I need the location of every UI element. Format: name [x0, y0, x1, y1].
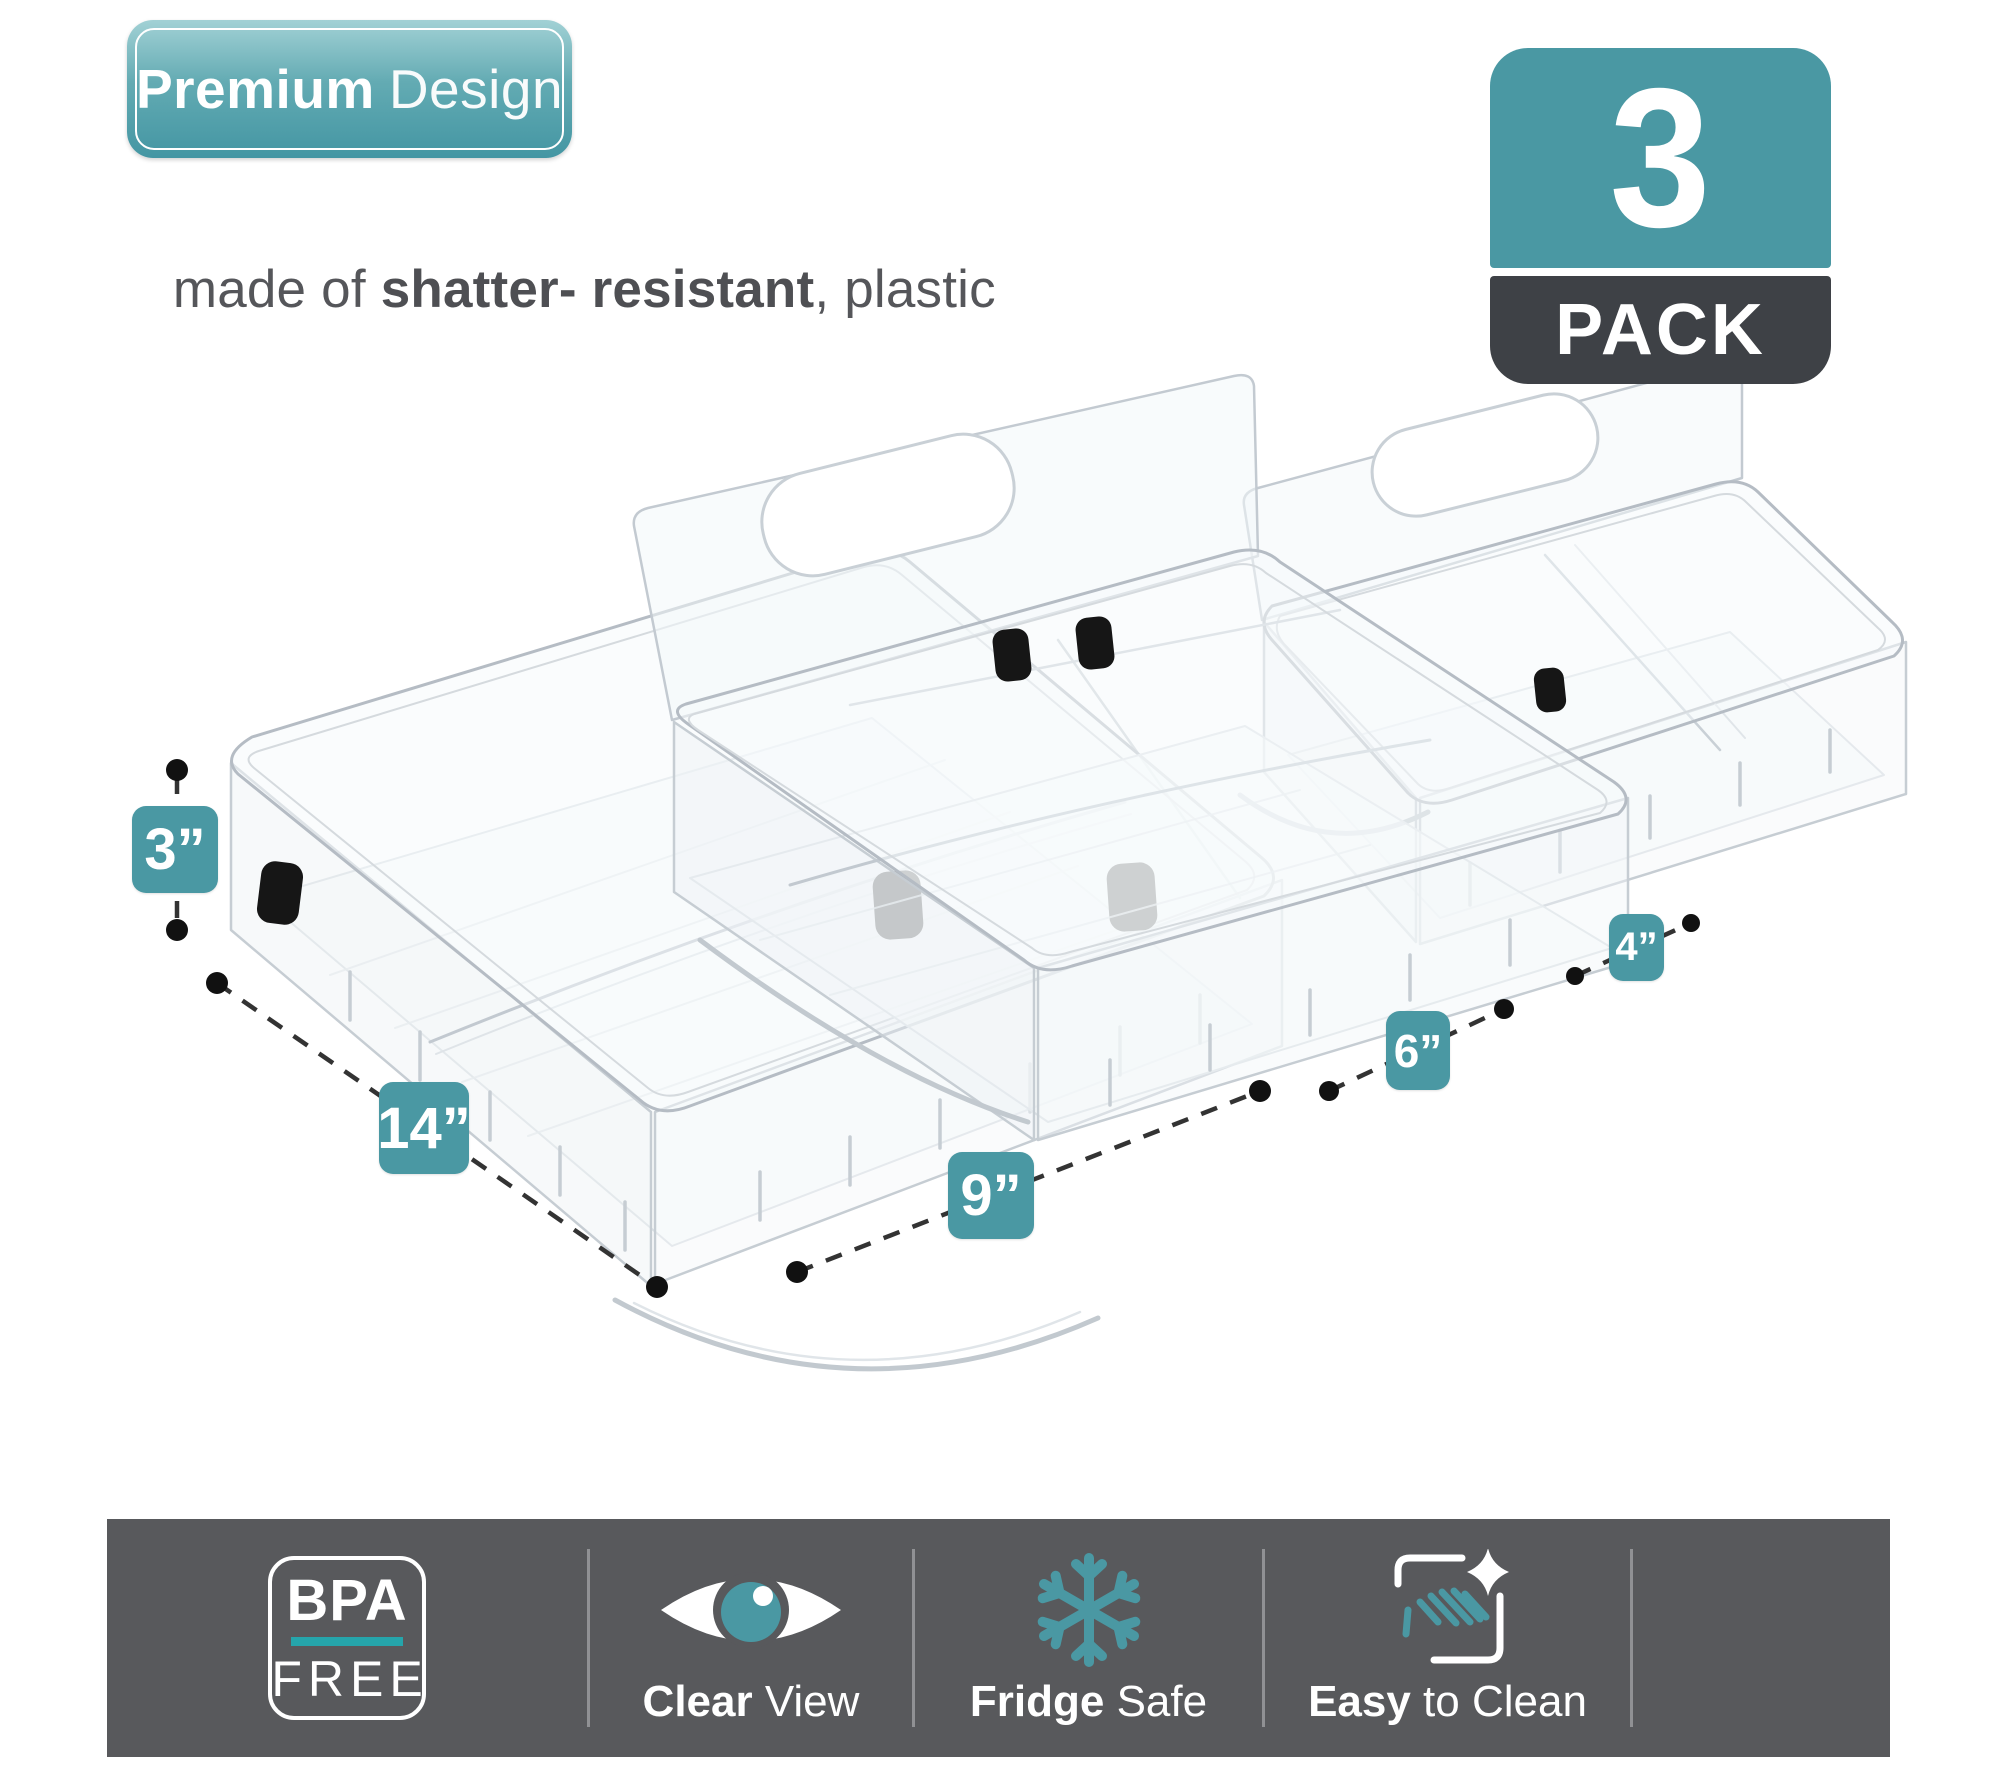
bpa-free-badge: BPA FREE — [268, 1556, 426, 1720]
feature-empty-cell — [1633, 1519, 1890, 1757]
subtitle-pre: made of — [173, 260, 381, 319]
feature-bpa: BPA FREE — [107, 1519, 587, 1757]
feature-fridge-safe: Fridge Safe — [915, 1519, 1262, 1757]
dimension-label-width: 9” — [948, 1152, 1034, 1239]
eye-icon — [656, 1549, 846, 1671]
dimension-label-height: 3” — [132, 806, 218, 893]
premium-title-bold: Premium — [136, 57, 375, 121]
bpa-teal-rule — [291, 1637, 403, 1646]
premium-design-badge: Premium Design — [127, 20, 572, 158]
dimension-label-mid-width: 6” — [1386, 1011, 1450, 1090]
fridge-safe-label: Fridge Safe — [970, 1677, 1207, 1727]
pack-label-bottom: PACK — [1490, 276, 1831, 384]
feature-bar: BPA FREE Clear View — [107, 1519, 1890, 1757]
dimension-label-length: 14” — [379, 1082, 469, 1174]
free-text: FREE — [271, 1654, 428, 1704]
pack-count-number: 3 — [1610, 59, 1711, 257]
subtitle: made of shatter- resistant, plastic — [143, 198, 996, 320]
feature-easy-clean: Easy to Clean — [1265, 1519, 1630, 1757]
easy-clean-label: Easy to Clean — [1308, 1677, 1587, 1727]
clear-view-label: Clear View — [643, 1677, 860, 1727]
divider-clip — [1533, 667, 1567, 714]
subtitle-post: , plastic — [814, 260, 995, 319]
snowflake-icon — [1029, 1549, 1149, 1671]
hand-sparkle-icon — [1383, 1549, 1513, 1671]
pack-label-text: PACK — [1555, 289, 1766, 371]
feature-clear-view: Clear View — [590, 1519, 912, 1757]
premium-title-light: Design — [389, 57, 563, 121]
subtitle-bold: shatter- resistant — [381, 260, 815, 319]
pack-count-top: 3 — [1490, 48, 1831, 268]
pack-count-badge: 3 PACK — [1490, 48, 1831, 384]
bin-front-handle — [615, 1300, 1098, 1369]
dimension-label-small-width: 4” — [1609, 914, 1664, 981]
bpa-text: BPA — [286, 1572, 407, 1630]
